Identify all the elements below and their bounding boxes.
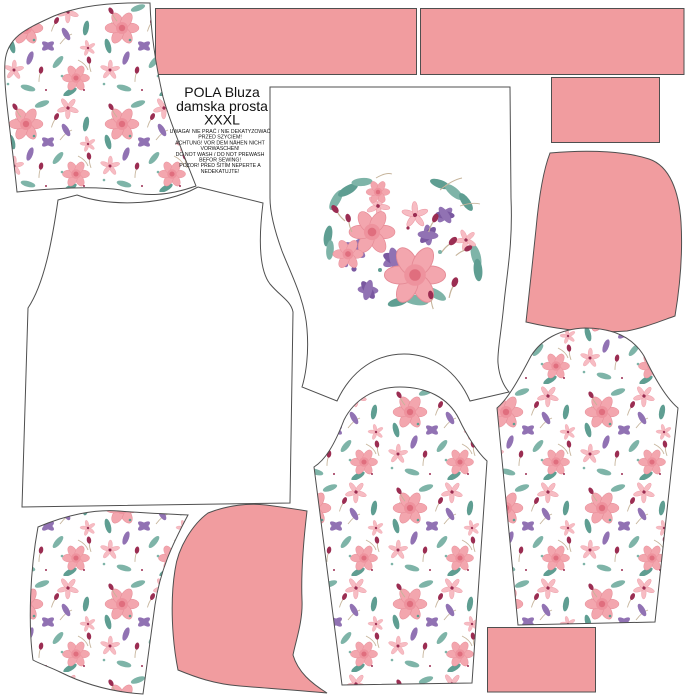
care-instructions-line-8: NEDEKATUJTE! xyxy=(201,169,240,175)
panel-title-line3: XXXL xyxy=(204,112,240,128)
back-bodice-piece xyxy=(22,187,293,507)
small-band-rectangle xyxy=(552,78,660,143)
sleeve-piece-left xyxy=(314,387,487,685)
sewing-pattern-canvas: POLA Bluza damska prosta XXXL UWAGA! NIE… xyxy=(0,0,700,700)
hem-band-piece-left xyxy=(156,9,417,75)
sleeve-piece-right xyxy=(497,328,678,625)
pocket-piece-floral xyxy=(30,511,188,694)
hood-piece-pink xyxy=(526,151,682,332)
pocket-piece-pink xyxy=(172,504,327,693)
hem-band-piece-right xyxy=(421,9,685,75)
cuff-rectangle-bottom xyxy=(488,628,596,693)
sewing-pattern-panel: POLA Bluza damska prosta XXXL UWAGA! NIE… xyxy=(0,0,700,700)
